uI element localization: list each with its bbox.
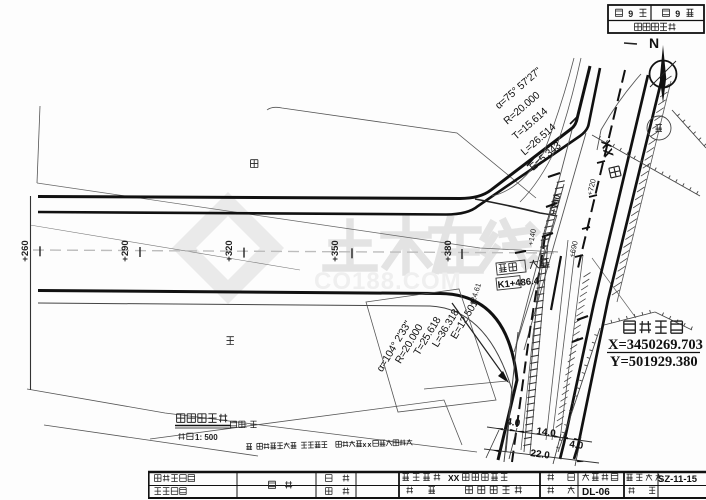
svg-text:N: N [649, 35, 659, 51]
svg-text:x: x [362, 440, 366, 449]
svg-text:9: 9 [675, 9, 680, 19]
svg-text:+260: +260 [20, 240, 31, 261]
svg-text:22.0: 22.0 [530, 448, 551, 462]
svg-text:XX: XX [448, 473, 460, 483]
svg-text:Y=501929.380: Y=501929.380 [610, 354, 698, 370]
svg-text:+290: +290 [120, 240, 131, 261]
svg-text:1: 500: 1: 500 [195, 433, 218, 442]
svg-text:9: 9 [628, 9, 633, 19]
svg-text:14.0: 14.0 [536, 426, 557, 440]
svg-text:+350: +350 [330, 240, 341, 261]
svg-text:+720: +720 [585, 178, 598, 196]
svg-text::: : [245, 421, 247, 430]
svg-text:4.0: 4.0 [506, 417, 522, 430]
svg-text:XX: XX [598, 138, 617, 159]
svg-text:DL-06: DL-06 [582, 487, 610, 498]
svg-text:+320: +320 [224, 240, 235, 261]
svg-text:X=3450269.703: X=3450269.703 [608, 337, 703, 353]
svg-text:+140: +140 [526, 228, 538, 246]
svg-text:CO188.COM: CO188.COM [314, 268, 462, 295]
svg-text:SZ-11-15: SZ-11-15 [658, 474, 698, 485]
svg-text:4.0: 4.0 [569, 439, 585, 452]
svg-text:x: x [367, 440, 371, 449]
svg-text:+380: +380 [443, 240, 454, 261]
